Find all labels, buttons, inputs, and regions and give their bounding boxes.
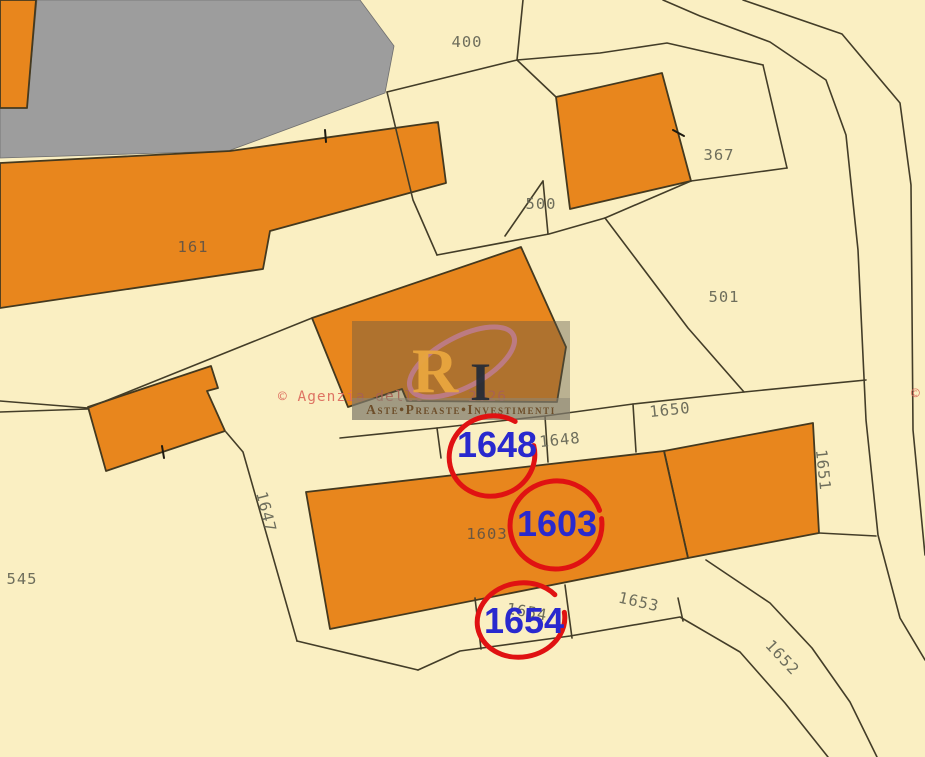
cadastral-map: 400 367 161 500 501 1650 1648 1651 1647 … (0, 0, 925, 757)
logo-monogram-icon: R (412, 335, 459, 406)
parcel-label-501: 501 (709, 288, 740, 306)
parcel-label-500: 500 (526, 195, 557, 213)
tick-mark (325, 130, 326, 142)
agency-logo-watermark: R I Aste•Preaste•Investimenti (352, 313, 570, 420)
parcel-label-161: 161 (178, 238, 209, 256)
copyright-symbol-right-edge: © (911, 386, 921, 402)
highlight-number-1654: 1654 (484, 600, 564, 641)
highlight-number-1603: 1603 (517, 503, 597, 544)
logo-caption-text: Aste•Preaste•Investimenti (366, 402, 556, 417)
parcel-label-400: 400 (452, 33, 483, 51)
parcel-label-1603-small: 1603 (466, 525, 507, 543)
highlight-number-1648: 1648 (457, 424, 537, 465)
parcel-label-367: 367 (704, 146, 735, 164)
cadastral-map-canvas: 400 367 161 500 501 1650 1648 1651 1647 … (0, 0, 925, 757)
parcel-label-545: 545 (7, 570, 38, 588)
